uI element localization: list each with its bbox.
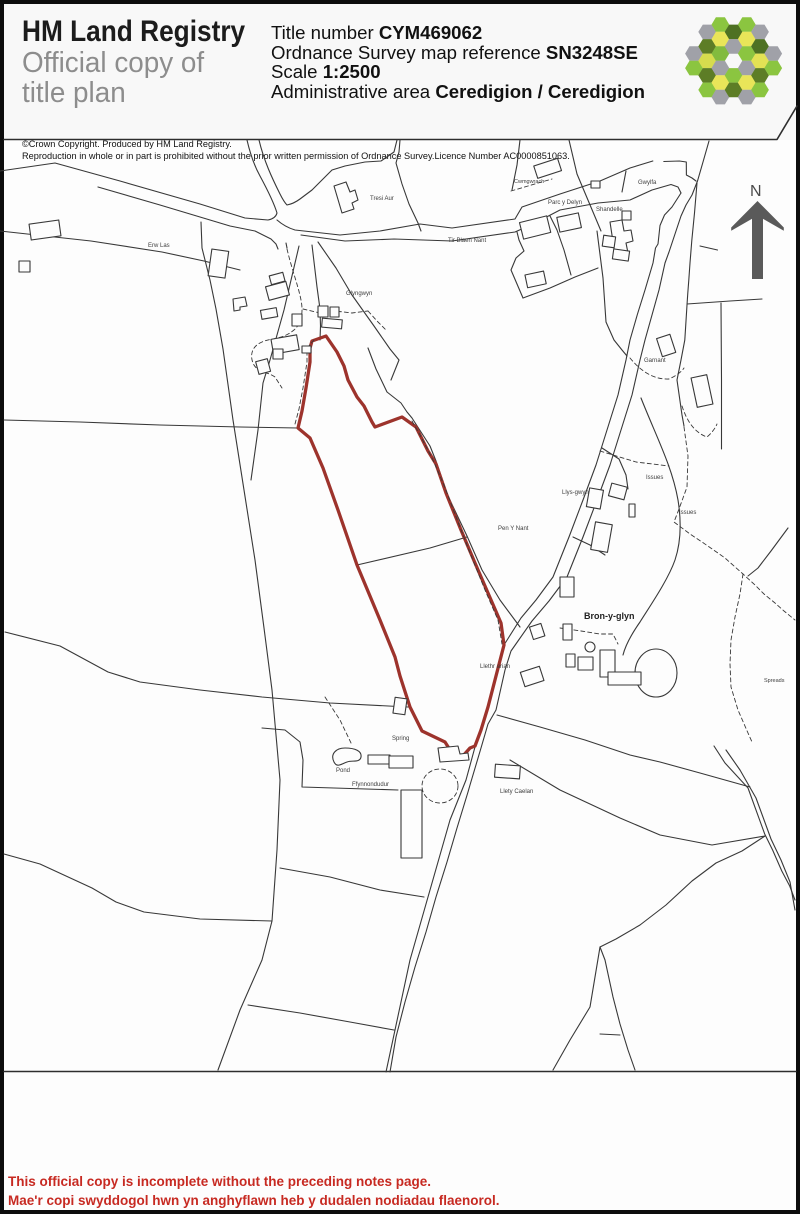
svg-text:Issues: Issues	[646, 475, 663, 481]
svg-text:Llethr arian: Llethr arian	[480, 664, 510, 670]
svg-text:Issues: Issues	[679, 510, 696, 516]
svg-text:Ffynnondudur: Ffynnondudur	[352, 782, 389, 788]
svg-text:Llys-gwyn: Llys-gwyn	[562, 490, 589, 496]
svg-text:Erw Las: Erw Las	[148, 243, 170, 249]
svg-text:Shandelle: Shandelle	[596, 207, 623, 213]
svg-text:Spring: Spring	[392, 736, 409, 742]
svg-text:Cwmgwrach: Cwmgwrach	[514, 179, 544, 185]
svg-text:Llety Caelan: Llety Caelan	[500, 789, 533, 795]
svg-text:N: N	[750, 183, 762, 200]
svg-text:Pen Y Nant: Pen Y Nant	[498, 526, 529, 532]
svg-text:Garnant: Garnant	[644, 358, 666, 364]
svg-text:Tir Blaen Nant: Tir Blaen Nant	[448, 238, 486, 244]
svg-text:Gwylfa: Gwylfa	[638, 180, 657, 186]
svg-text:Spreads: Spreads	[764, 678, 785, 684]
svg-text:Glyngwyn: Glyngwyn	[346, 291, 372, 297]
svg-text:Reproduction in whole or in pa: Reproduction in whole or in part is proh…	[22, 151, 570, 161]
svg-text:Parc y Delyn: Parc y Delyn	[548, 200, 582, 206]
svg-text:Pond: Pond	[336, 768, 350, 774]
svg-text:Bron-y-glyn: Bron-y-glyn	[584, 611, 635, 621]
svg-text:©Crown Copyright. Produced by: ©Crown Copyright. Produced by HM Land Re…	[22, 139, 232, 149]
svg-text:Tresi Aur: Tresi Aur	[370, 196, 394, 202]
